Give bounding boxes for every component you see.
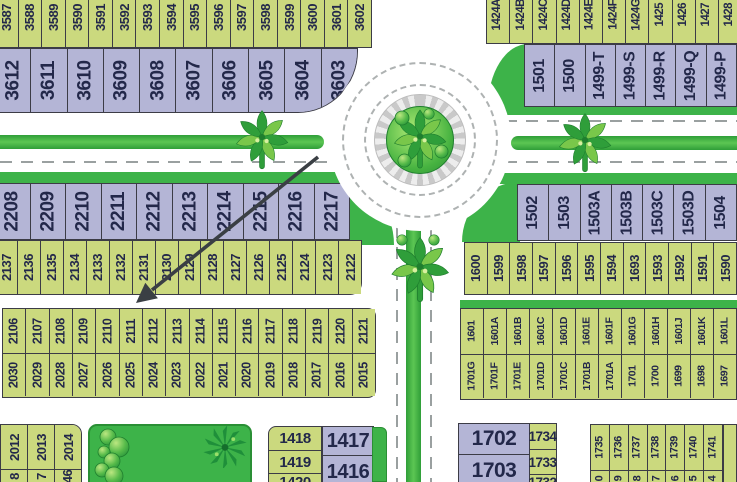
pointer-arrow [0,0,737,482]
plot-map: 3587358835893590359135923593359435953596… [0,0,737,482]
